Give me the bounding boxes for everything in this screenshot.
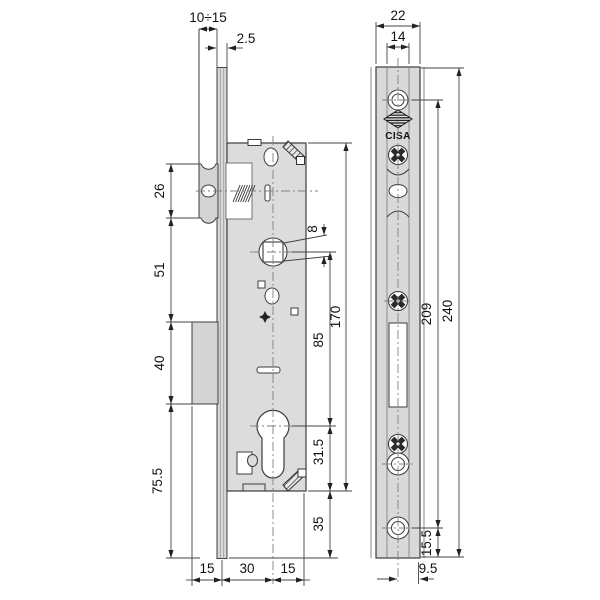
dim-label-9-5: 9.5 xyxy=(419,561,438,576)
dim-label-8: 8 xyxy=(305,225,320,233)
oval-hole-middle xyxy=(265,288,279,304)
top-tab-slot xyxy=(248,140,261,146)
dim-label-15-right: 15 xyxy=(280,561,295,576)
technical-drawing-page: 10÷15 2.5 26 51 40 75.5 8 85 170 31.5 35… xyxy=(0,0,600,600)
faceplate-edge xyxy=(217,68,227,559)
spring-clip-bottom-end xyxy=(298,469,306,477)
dim-label-15-left: 15 xyxy=(199,561,214,576)
dim-label-85: 85 xyxy=(311,332,326,347)
dim-label-15-5: 15.5 xyxy=(419,530,434,556)
dim-label-31-5: 31.5 xyxy=(311,439,326,465)
dim-label-75-5: 75.5 xyxy=(150,468,165,494)
dim-label-40: 40 xyxy=(152,355,167,370)
retainer-clip-notch xyxy=(248,455,258,467)
dim-label-30: 30 xyxy=(239,561,254,576)
deadbolt xyxy=(192,322,218,404)
lock-technical-drawing: 10÷15 2.5 26 51 40 75.5 8 85 170 31.5 35… xyxy=(0,0,600,600)
spring-clip-top-end xyxy=(297,157,305,165)
dim-label-209: 209 xyxy=(419,303,434,326)
top-oval-hole xyxy=(264,148,278,166)
dim-label-240: 240 xyxy=(440,300,455,323)
dim-label-35: 35 xyxy=(311,516,326,531)
dim-label-plate-thickness: 2.5 xyxy=(237,31,256,46)
dim-label-14: 14 xyxy=(390,29,406,44)
dim-label-22: 22 xyxy=(390,8,405,23)
dim-label-51: 51 xyxy=(152,262,167,277)
faceplate-front-view: CISA xyxy=(371,58,424,584)
dim-label-26: 26 xyxy=(152,183,167,198)
small-square-hole-1 xyxy=(258,281,265,288)
dim-label-gap-range: 10÷15 xyxy=(189,10,226,25)
guide-slot-vertical xyxy=(265,185,270,201)
dim-label-170: 170 xyxy=(328,306,343,329)
small-square-hole-2 xyxy=(291,308,298,315)
guide-slot-horizontal xyxy=(257,367,280,373)
